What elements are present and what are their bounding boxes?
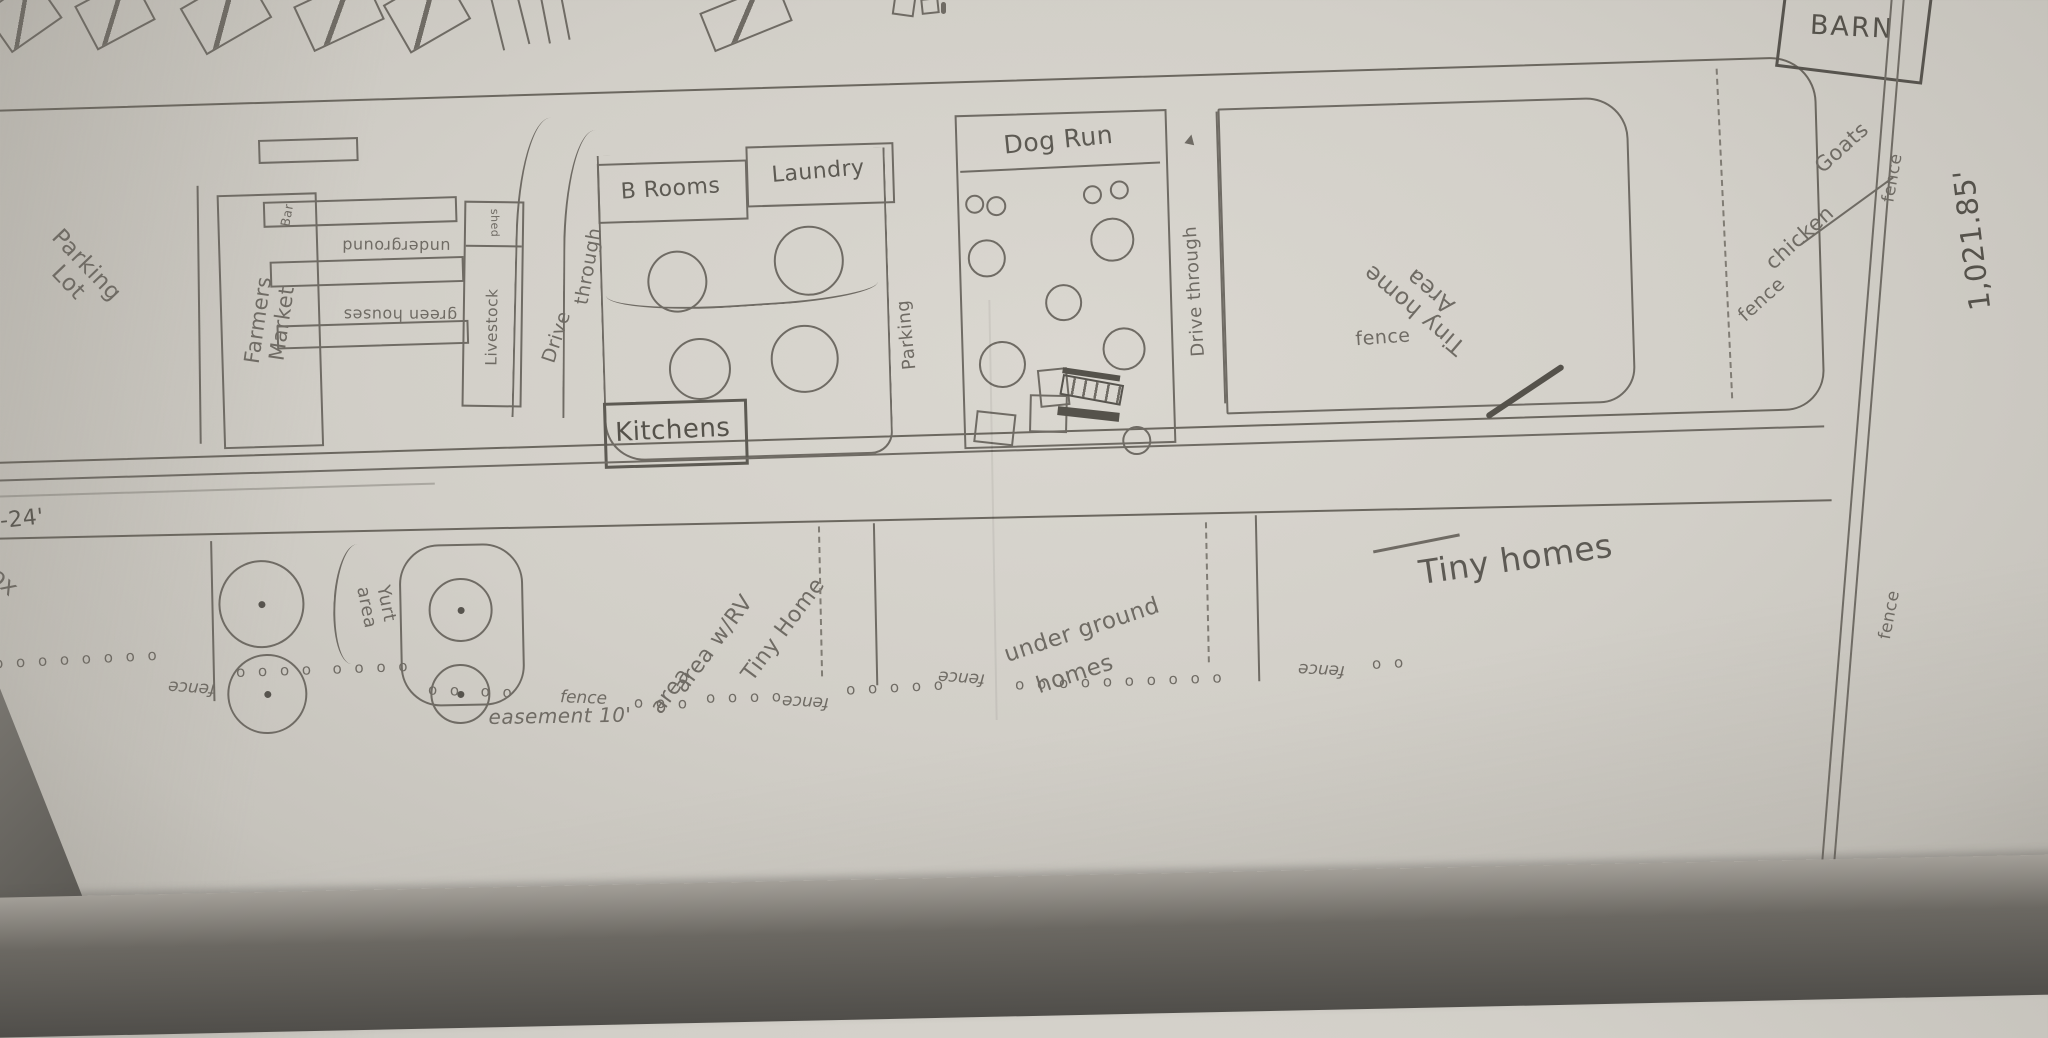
underground-label: underground [342,237,451,255]
main-development-strip: ParkingLot FarmersMarket Bar underground… [0,56,1826,466]
direction-arrow-icon [1184,133,1196,145]
barn-label: BARN [1809,11,1894,46]
boundary-length-label: 1,021.85' [1947,168,1996,313]
parking-lot-label: ParkingLot [0,189,163,360]
sketch-flag-icon [0,0,63,53]
section-divider [1255,515,1261,681]
parking-label: Parking [894,299,921,371]
fence-dots: o o o o [706,687,785,706]
fence-label: fence [1876,589,1904,641]
greenhouse-row [270,256,465,288]
easement-label: easement 10' [488,704,631,729]
greenhouse-row [263,196,458,228]
band-inner-dashed-line [1716,69,1734,399]
fence-label: fence [1298,659,1346,681]
goats-label: Goats [1810,118,1873,178]
sketch-pole-icon [539,0,570,44]
section-divider [873,523,879,685]
fence-label: fence [782,691,830,713]
sketch-pole-icon [490,0,531,51]
tiny-home-rv-label: Tiny Home [738,574,831,687]
fence-dots: o o o o [428,680,516,701]
fence-label: fence [1355,325,1411,350]
yurt-circle [218,559,306,649]
fence-dots: o o o [634,694,691,713]
kitchens-label: Kitchens [615,414,732,449]
dog-structure [1028,366,1126,435]
livestock-label: Livestock [483,288,501,366]
sketch-flag-icon [699,0,793,52]
section-dashed-divider [1205,522,1210,662]
shed-label: shed [488,209,501,238]
fence-dots: o o [1372,653,1408,673]
dog-run-square [973,410,1016,446]
fence-label: fence [937,666,985,689]
greenhouse-row [258,137,359,164]
road-width-label: -24' [0,505,45,534]
sketch-flag-icon [383,0,472,54]
sketch-flag-icon [74,0,156,51]
photographed-site-plan-sketch: { "labels": { "parking_lot_line1": "Park… [0,0,2048,946]
sketch-flag-icon [180,0,273,55]
sketch-mark-icon [892,0,917,17]
drive-through-right-label: Drive through [1181,225,1210,357]
section-dashed-divider [818,526,823,676]
sketch-mark-icon [920,0,940,15]
dog-run-circle [1122,426,1152,456]
sketch-mark-icon [941,2,946,14]
sketch-flag-icon [293,0,385,52]
band-bottom-faint-line [0,483,435,500]
fence-label: fence [167,676,215,699]
green-houses-label: green houses [343,306,457,325]
section-divider [210,541,216,701]
